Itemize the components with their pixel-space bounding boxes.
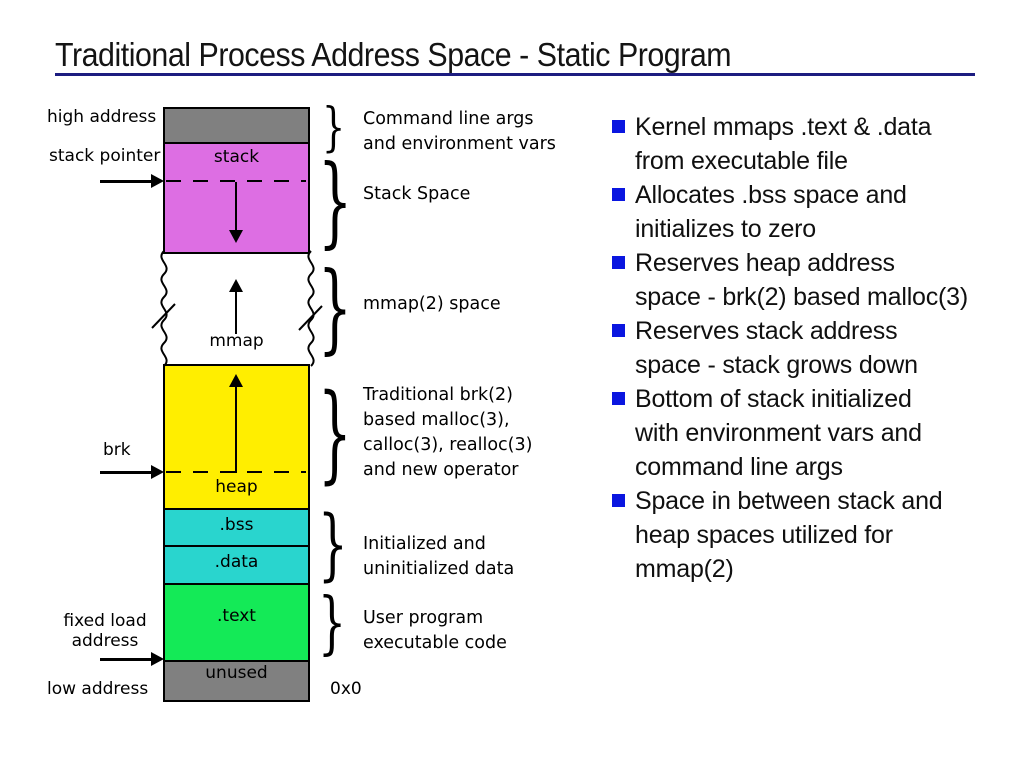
bullet-list: Kernel mmaps .text & .data from executab… — [612, 110, 1017, 586]
fixed-load-address-label: fixed load address — [55, 611, 155, 651]
list-item: Bottom of stack initialized with environ… — [612, 382, 1017, 484]
list-item: Kernel mmaps .text & .data from executab… — [612, 110, 1017, 178]
base-address-label: 0x0 — [330, 679, 362, 699]
high-address-label: high address — [47, 107, 156, 127]
list-item: Reserves stack address space - stack gro… — [612, 314, 1017, 382]
bss-label: .bss — [163, 515, 310, 535]
brace-icon — [318, 587, 346, 660]
fixed-load-arrow-line — [100, 658, 152, 661]
mmap-label: mmap — [163, 331, 310, 351]
mmap-grow-arrow-line — [235, 290, 237, 334]
annotation-stack-space: Stack Space — [363, 182, 470, 207]
brace-icon — [318, 376, 352, 490]
brace-icon — [318, 256, 352, 360]
bullet-square-icon — [612, 256, 625, 269]
brk-arrow-line — [100, 471, 152, 474]
title-underline — [55, 73, 975, 76]
brk-arrowhead-icon — [151, 465, 164, 479]
list-item: Reserves heap address space - brk(2) bas… — [612, 246, 1017, 314]
stack-grow-arrow-line — [235, 182, 237, 232]
stack-pointer-label: stack pointer — [49, 146, 160, 166]
unused-label: unused — [163, 663, 310, 683]
bullet-square-icon — [612, 494, 625, 507]
annotation-args-env: Command line args and environment vars — [363, 107, 556, 157]
heap-label: heap — [163, 477, 310, 497]
stack-label: stack — [163, 147, 310, 167]
stack-pointer-arrowhead-icon — [151, 174, 164, 188]
bullet-square-icon — [612, 188, 625, 201]
list-item: Allocates .bss space and initializes to … — [612, 178, 1017, 246]
low-address-label: low address — [47, 679, 148, 699]
data-label: .data — [163, 552, 310, 572]
brk-label: brk — [103, 440, 131, 460]
list-item: Space in between stack and heap spaces u… — [612, 484, 1017, 586]
bullet-square-icon — [612, 324, 625, 337]
annotation-bss-data: Initialized and uninitialized data — [363, 532, 514, 582]
stack-grow-arrowhead-icon — [229, 230, 243, 243]
segment-args-env — [163, 107, 310, 144]
fixed-load-arrowhead-icon — [151, 652, 164, 666]
brace-icon — [318, 503, 348, 587]
text-label: .text — [163, 606, 310, 626]
annotation-heap: Traditional brk(2) based malloc(3), call… — [363, 383, 532, 483]
stack-pointer-arrow-line — [100, 180, 152, 183]
annotation-mmap-space: mmap(2) space — [363, 292, 501, 317]
bullet-square-icon — [612, 120, 625, 133]
annotation-text: User program executable code — [363, 606, 507, 656]
brace-icon — [318, 150, 352, 255]
heap-grow-arrow-line — [235, 385, 237, 473]
bullet-square-icon — [612, 392, 625, 405]
page-title: Traditional Process Address Space - Stat… — [55, 36, 731, 74]
